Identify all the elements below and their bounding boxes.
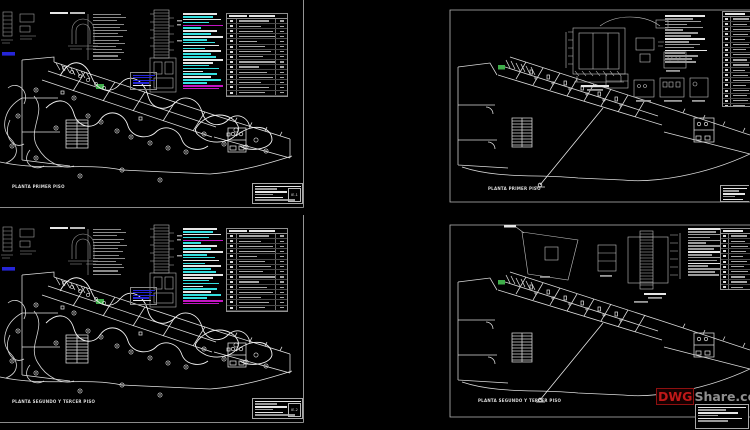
- notes-list: [183, 228, 225, 306]
- fixture-details: [1, 12, 98, 60]
- symbol-table-rows: [227, 19, 287, 97]
- panel-schedule: [93, 14, 129, 62]
- green-entrance-marker: [498, 280, 505, 285]
- watermark-brand: DWG: [656, 388, 694, 405]
- symbol-table: [722, 11, 750, 107]
- blue-highlight-bar: [2, 52, 15, 56]
- blue-legend-box: [130, 72, 157, 90]
- plan-label: PLANTA SEGUNDO Y TERCER PISO: [478, 398, 561, 403]
- roof-tank-detail: [504, 225, 680, 303]
- green-entrance-marker: [498, 65, 505, 70]
- symbol-table-rows: [721, 234, 750, 290]
- title-block: [695, 404, 749, 429]
- watermark: DWGShare.co: [656, 389, 750, 404]
- drain-pipe: [536, 108, 603, 187]
- notes-list: [665, 15, 709, 64]
- watermark-suffix: Share.co: [694, 389, 750, 404]
- cad-preview-canvas: PLANTA PRIMER PISO IE-1: [0, 0, 750, 430]
- title-block-rows: [698, 407, 746, 422]
- plan-label: PLANTA PRIMER PISO: [12, 184, 65, 189]
- drain-pipe: [536, 323, 603, 402]
- plan-label: PLANTA PRIMER PISO: [488, 186, 541, 191]
- title-block: [720, 185, 749, 202]
- title-block-rows: [723, 188, 747, 201]
- title-block: IE-1: [252, 183, 303, 204]
- symbol-table-rows: [723, 17, 750, 107]
- sheet-electrical-upper-floors: PLANTA SEGUNDO Y TERCER PISO IE-2: [0, 215, 307, 427]
- symbol-table-rows: [227, 234, 287, 312]
- panel-schedule: [93, 229, 129, 277]
- sheet-number: IE-1: [288, 188, 301, 202]
- sheet-electrical-first-floor: PLANTA PRIMER PISO IE-1: [0, 0, 307, 212]
- sheet-number: IE-2: [288, 403, 301, 417]
- building-walls: [458, 272, 750, 396]
- notes-list: [183, 13, 225, 91]
- fixture-details: [1, 227, 98, 275]
- blue-highlight-bar: [2, 267, 15, 271]
- sheet-sanitary-first-floor: PLANTA PRIMER PISO: [448, 8, 750, 204]
- title-block: IE-2: [252, 398, 303, 419]
- plan-label: PLANTA SEGUNDO Y TERCER PISO: [12, 399, 95, 404]
- symbol-table: [226, 228, 288, 312]
- blue-legend-box: [130, 287, 157, 305]
- building-walls: [458, 57, 750, 181]
- notes-list: [688, 228, 718, 277]
- symbol-table: [720, 228, 750, 290]
- symbol-table: [226, 13, 288, 97]
